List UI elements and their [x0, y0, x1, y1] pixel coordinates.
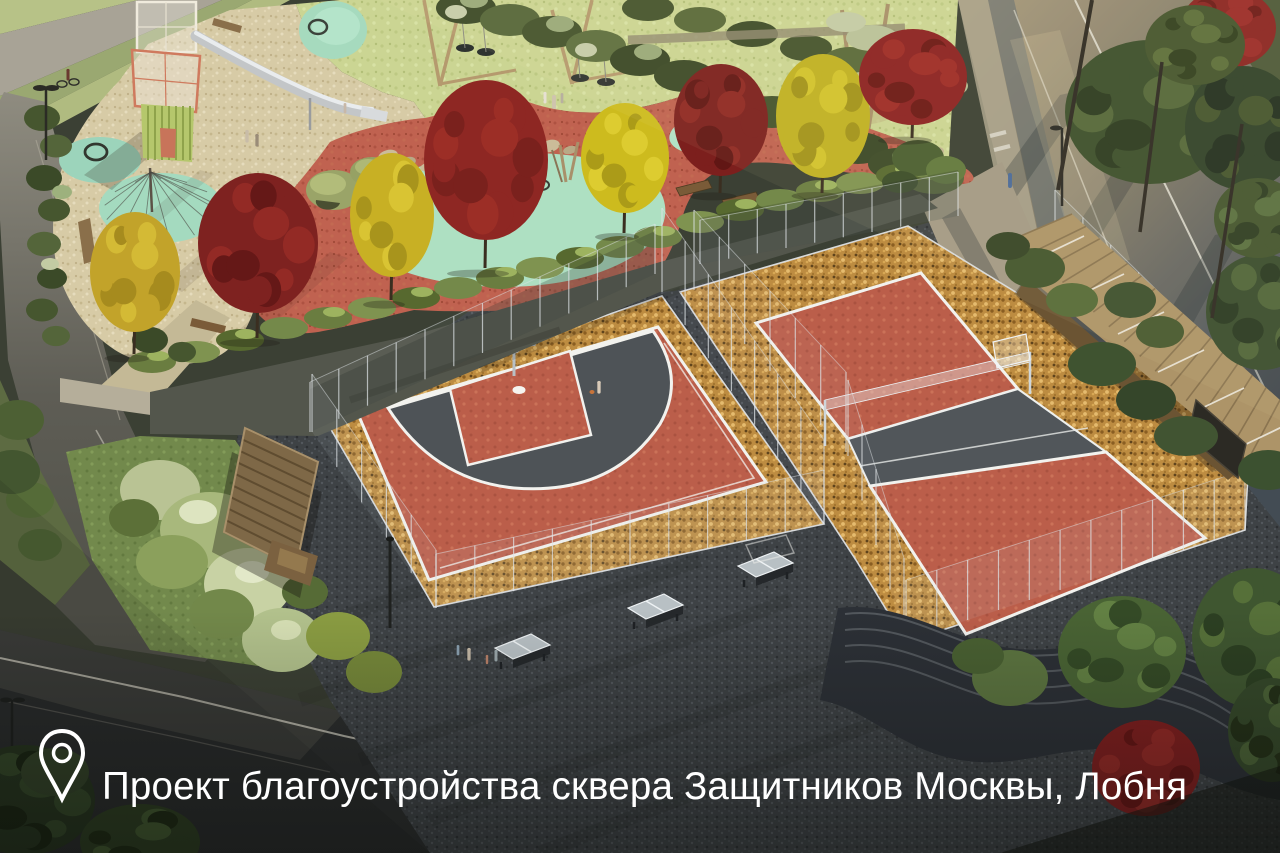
svg-text:Проект благоустройства сквера: Проект благоустройства сквера Защитников…: [102, 765, 1187, 808]
